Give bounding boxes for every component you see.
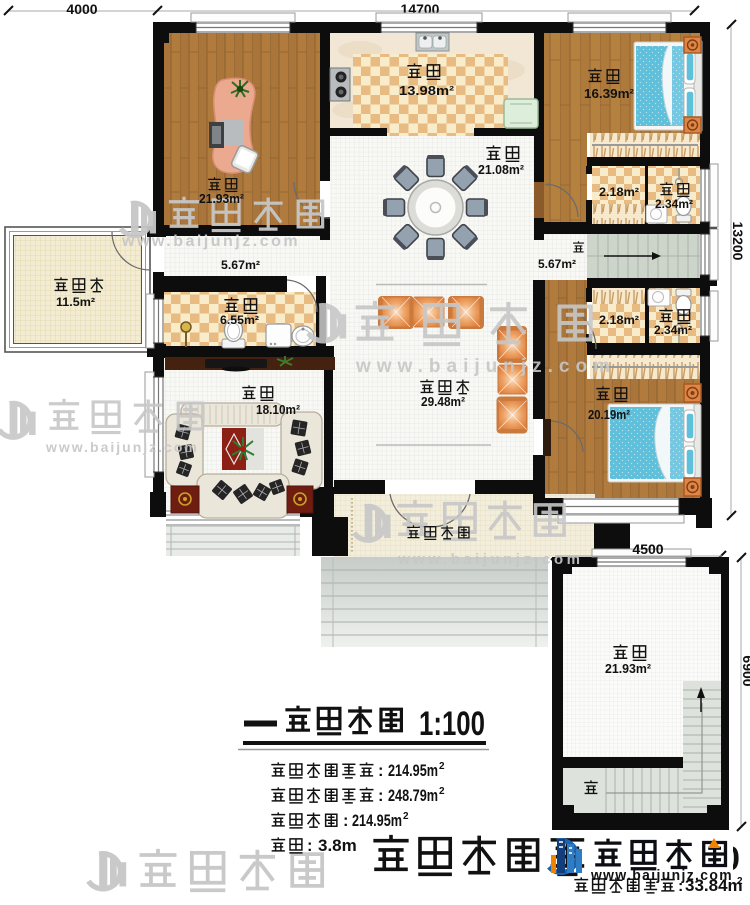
svg-text:18.10m²: 18.10m² <box>256 402 301 417</box>
svg-text:11.5m²: 11.5m² <box>56 295 95 309</box>
svg-text:5.67m²: 5.67m² <box>538 257 576 271</box>
svg-text:2: 2 <box>439 761 445 772</box>
svg-text:2.34m²: 2.34m² <box>655 197 693 211</box>
svg-text:214.95m: 214.95m <box>388 761 438 780</box>
svg-text:1:100: 1:100 <box>419 705 485 743</box>
svg-text::: : <box>678 878 683 895</box>
svg-text:29.48m²: 29.48m² <box>421 394 466 409</box>
svg-text:16.39m²: 16.39m² <box>584 86 635 101</box>
svg-text:5.67m²: 5.67m² <box>221 258 260 272</box>
svg-text:2.34m²: 2.34m² <box>654 323 692 337</box>
svg-text::: : <box>378 762 384 780</box>
svg-text:248.79m: 248.79m <box>388 786 438 805</box>
svg-text:www.baijunjz.com: www.baijunjz.com <box>397 551 583 568</box>
svg-text::: : <box>378 787 384 805</box>
svg-text:21.08m²: 21.08m² <box>478 162 525 177</box>
svg-text:4000: 4000 <box>66 1 97 17</box>
svg-text:3.8m: 3.8m <box>318 836 357 855</box>
svg-text::: : <box>307 837 313 855</box>
svg-text:13.98m²: 13.98m² <box>399 83 455 98</box>
svg-text:33.84m: 33.84m <box>685 876 743 895</box>
svg-text::: : <box>343 812 349 830</box>
svg-text:6900: 6900 <box>740 655 750 686</box>
svg-text:21.93m²: 21.93m² <box>199 191 245 206</box>
svg-text:2: 2 <box>737 876 743 887</box>
svg-text:2: 2 <box>439 786 445 797</box>
svg-text:13200: 13200 <box>730 222 746 261</box>
svg-text:20.19m²: 20.19m² <box>588 407 631 422</box>
svg-text:2: 2 <box>403 811 409 822</box>
svg-text:214.95m: 214.95m <box>352 811 402 830</box>
svg-text:www.baijunjz.com: www.baijunjz.com <box>355 356 616 377</box>
svg-text:4500: 4500 <box>632 541 663 557</box>
svg-text:2.18m²: 2.18m² <box>599 313 639 327</box>
svg-text:www.baijunjz.com: www.baijunjz.com <box>45 439 199 455</box>
svg-text:6.55m²: 6.55m² <box>220 313 259 327</box>
svg-text:21.93m²: 21.93m² <box>605 661 652 676</box>
svg-text:www.baijunjz.com: www.baijunjz.com <box>121 233 300 250</box>
svg-text:2.18m²: 2.18m² <box>599 185 639 199</box>
